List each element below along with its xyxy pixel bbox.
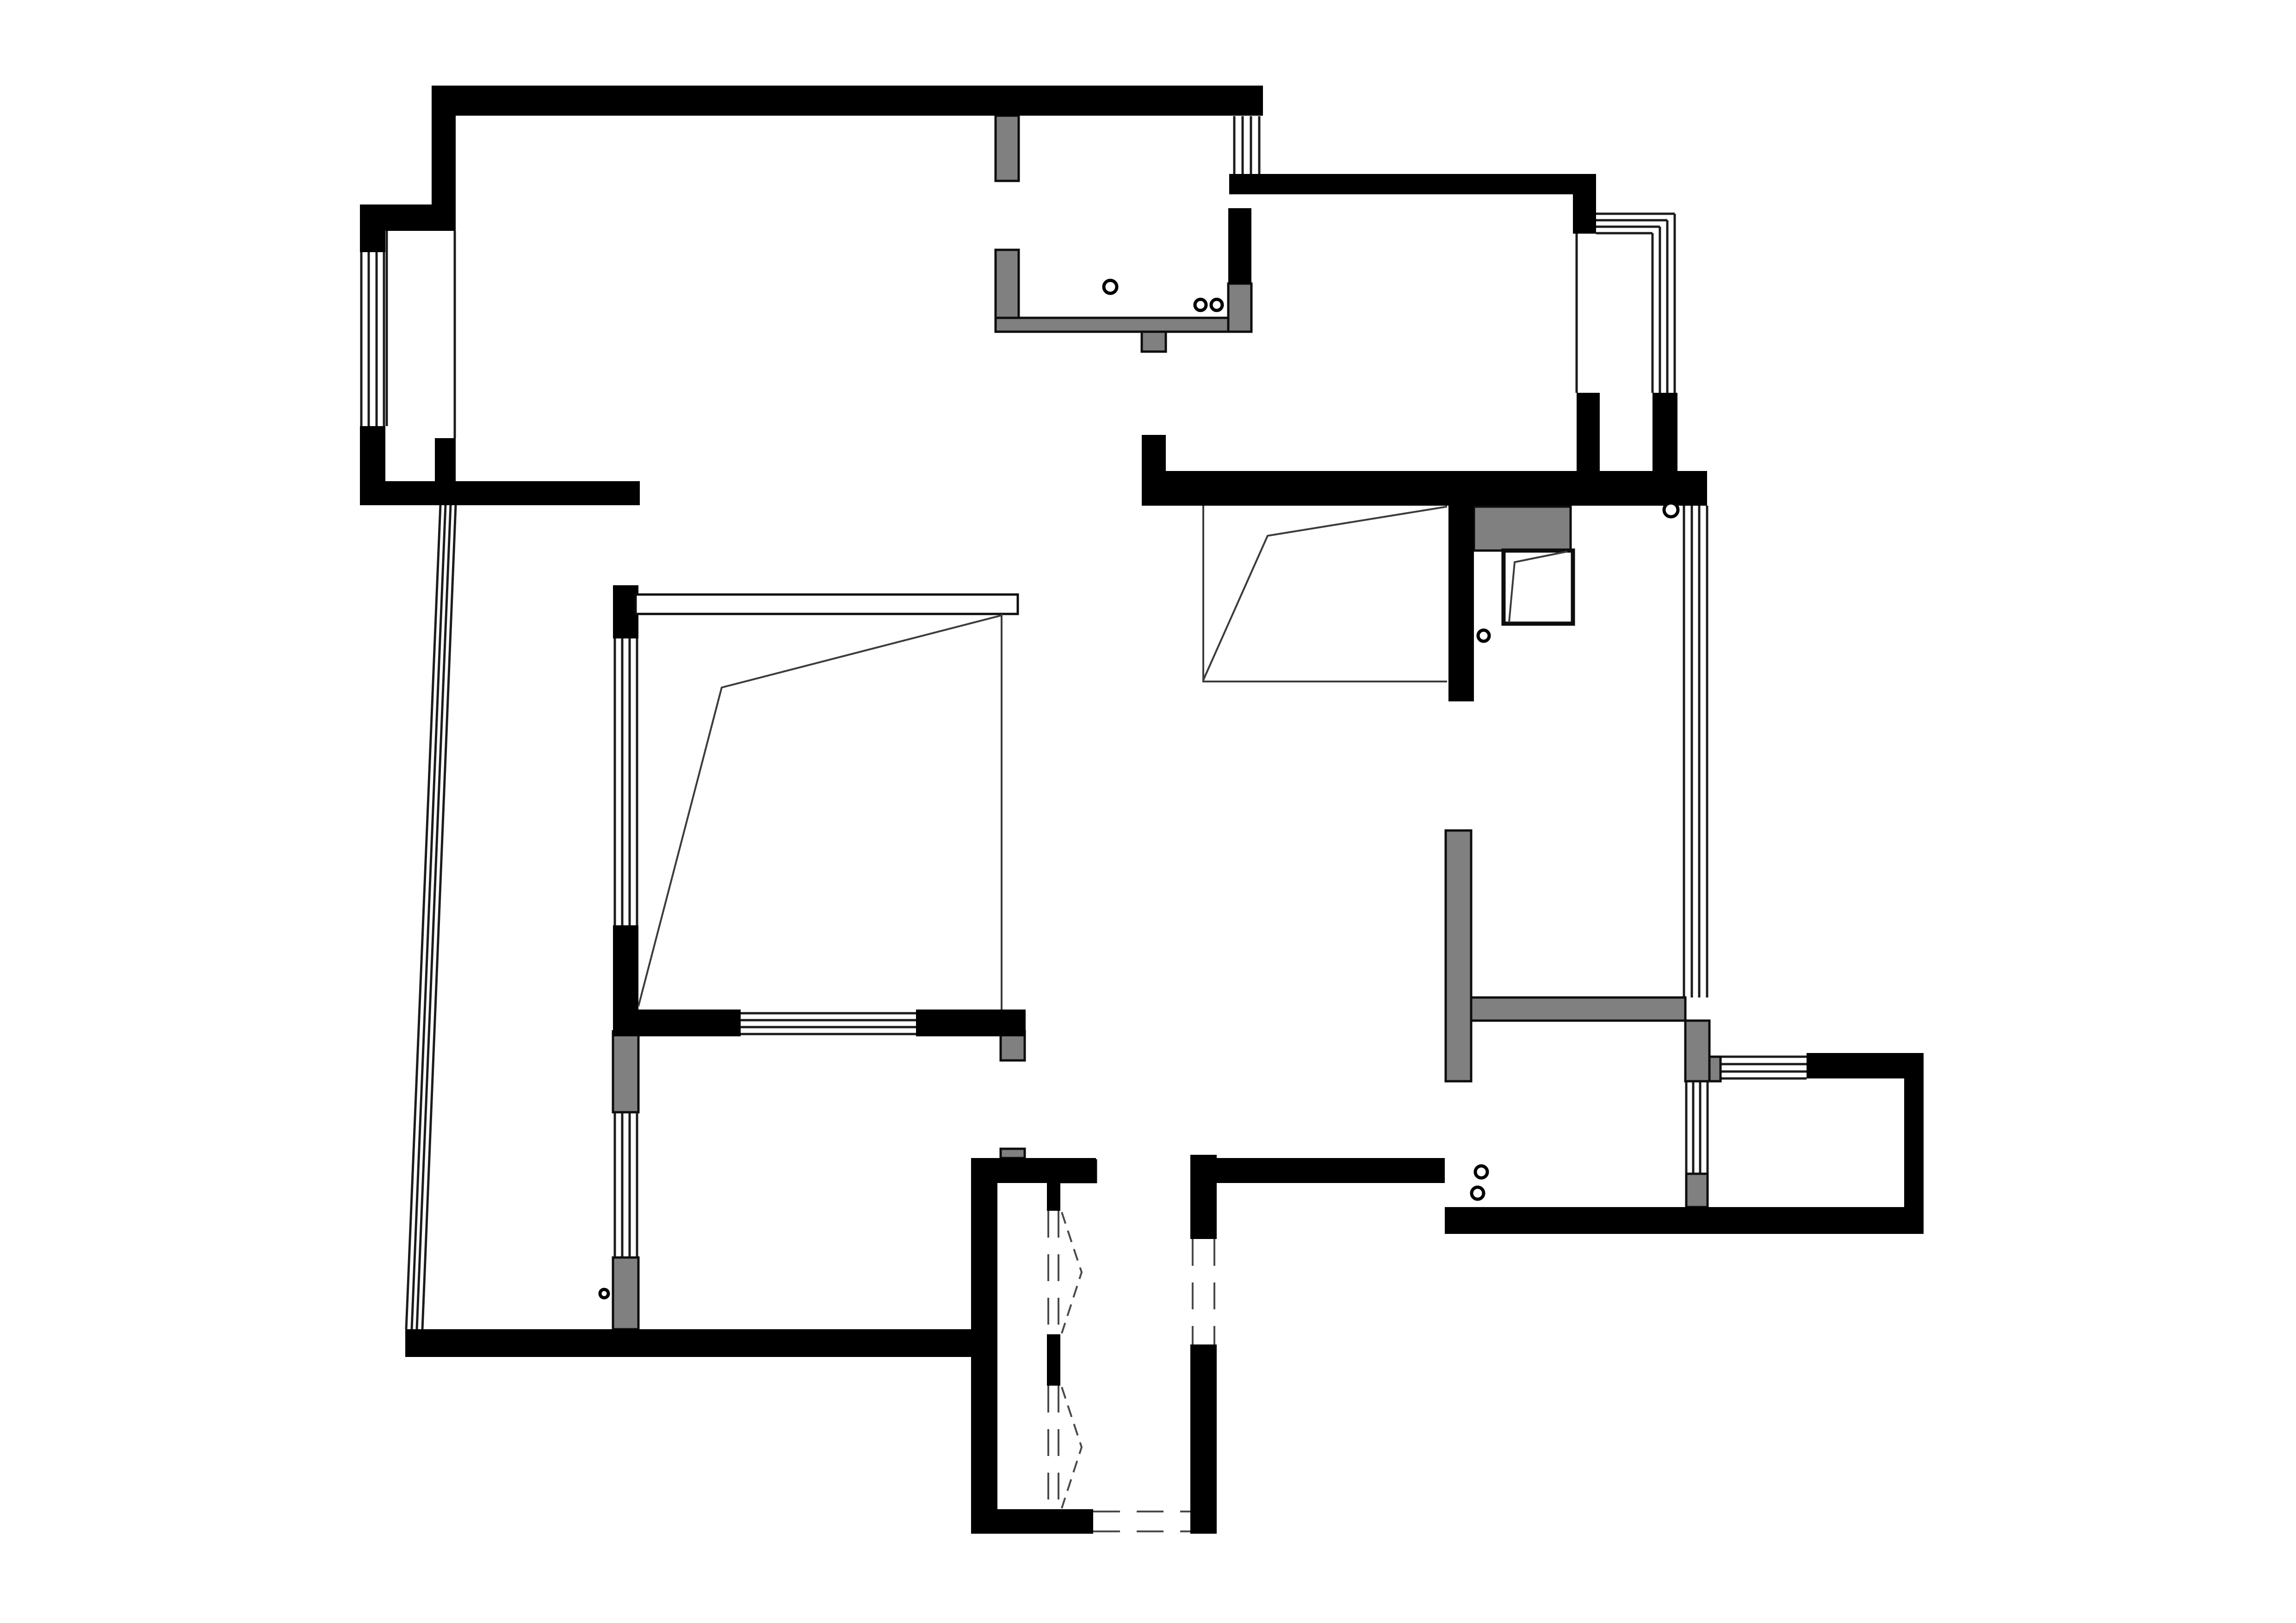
wall-segment [971,1158,997,1534]
gray-partition [1709,1057,1720,1081]
wall-segment [996,1509,1093,1534]
wall-segment [432,116,456,207]
wall-segment [432,86,1263,116]
wall-segment [1228,208,1251,284]
gray-partition [1471,997,1685,1021]
door-leaf-box [636,595,1018,614]
gray-partition [1001,1149,1025,1158]
wall-segment [1190,1155,1217,1239]
wall-segment [435,438,456,486]
gray-partition [1142,332,1166,352]
plumbing-circle [1195,299,1206,310]
wall-segment [1445,1207,1924,1234]
gray-partition [996,116,1019,181]
paper-background [0,0,2296,1623]
gray-partition [1446,830,1471,1081]
wall-segment [971,1158,1096,1183]
wall-segment [1573,192,1596,234]
wall-segment [916,1010,1026,1036]
plumbing-circle [1211,299,1222,310]
wall-segment [360,204,456,231]
plumbing-circle [1478,630,1489,641]
gray-partition [1228,284,1251,332]
gray-partition [1686,1174,1708,1207]
wall-segment [1142,471,1707,506]
plumbing-circle [1472,1187,1484,1199]
gray-partition [1474,507,1571,551]
wall-segment [1652,393,1677,471]
floor-plan-page [0,0,2296,1623]
wall-segment [405,1329,971,1357]
wall-segment [1047,1180,1060,1211]
wall-segment [1448,506,1474,701]
wall-segment [1577,393,1600,471]
wall-segment [360,231,385,252]
plumbing-circle [1475,1166,1487,1178]
plumbing-circle [1664,503,1678,517]
wall-segment [1217,1158,1445,1183]
gray-partition [613,1031,638,1112]
gray-partition [1685,1021,1709,1081]
wall-segment [360,481,640,505]
wall-segment [1047,1334,1060,1386]
wall-segment [613,1010,741,1036]
floor-plan [0,0,2296,1623]
gray-partition [996,318,1251,332]
gray-partition [613,1258,638,1329]
wall-segment [1190,1344,1217,1534]
plumbing-circle [1104,280,1117,293]
wall-segment [1229,174,1596,194]
wall-segment [1142,435,1166,471]
wall-segment [1904,1053,1924,1234]
plumbing-circle [600,1289,608,1298]
